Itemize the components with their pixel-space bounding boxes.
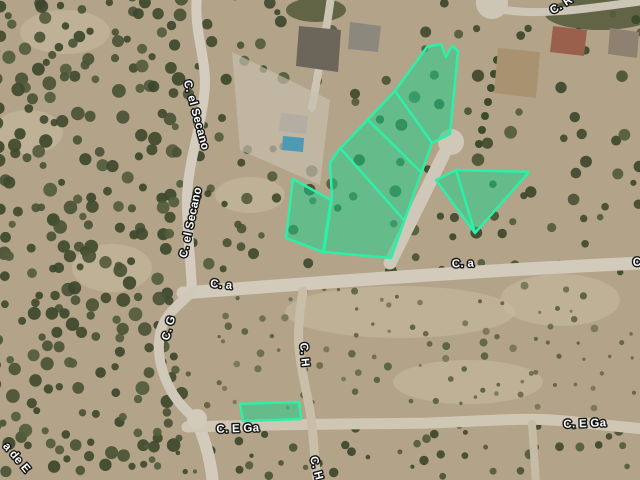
tree [84,451,94,461]
tree [553,383,557,387]
tree [571,168,582,179]
tree [77,263,84,270]
tree [172,123,179,130]
tree [53,220,67,234]
tree [7,20,16,29]
tree [42,76,56,90]
tree [167,21,176,30]
tree [44,92,55,103]
tree [235,437,244,446]
tree [64,250,76,262]
hedge-tree [478,126,486,134]
tree [254,365,261,372]
tree [236,466,244,474]
building-gray-roof [296,26,341,72]
tree [6,389,20,403]
tree [27,244,36,253]
tree [139,184,147,192]
tree [516,31,525,40]
tree [413,440,421,448]
tree [72,382,84,394]
tree [461,366,467,372]
tree [517,467,525,475]
street-label-c-a: C. a [452,258,475,271]
tree [99,459,111,471]
tree [24,104,33,113]
tree [341,441,349,449]
tree [410,324,416,330]
tree [172,147,182,157]
tree [202,19,213,30]
tree [91,332,100,341]
sandy-clearing [500,274,620,326]
tree [472,153,485,166]
tree [591,325,599,333]
tree [427,341,433,347]
tree [249,454,253,458]
tree [38,204,46,212]
sandy-clearing [20,10,110,54]
tree [303,258,313,268]
tree [206,36,217,47]
tree [462,452,469,459]
tree [221,74,232,85]
tree [56,115,68,127]
tree [454,30,463,39]
tree [577,342,580,345]
tree [124,36,131,43]
tree [548,324,554,330]
tree [265,471,274,480]
tree [555,442,564,451]
tree [525,186,536,197]
tree [62,430,71,439]
tree [148,132,162,146]
tree [95,367,106,378]
tree [619,340,624,345]
tree [149,53,156,60]
tree [176,451,181,456]
tree [176,435,183,442]
tree [9,221,16,228]
tree [384,363,392,371]
tree [70,439,82,451]
tree [39,12,51,24]
tree [409,399,414,404]
tree [351,98,359,106]
tree [43,183,57,197]
tree [616,70,628,82]
tree [27,398,37,408]
tree [28,307,41,320]
tree [112,316,120,324]
tree [116,111,129,124]
tree [186,371,191,376]
tree [419,456,428,465]
tree [55,43,64,52]
tree [323,346,329,352]
tree [92,410,100,418]
tree [629,332,633,336]
building-light-roof [348,22,381,52]
tree [571,316,577,322]
tree [316,362,323,369]
tree [218,114,226,122]
tree [1,300,9,308]
tree [79,153,91,165]
map-canvas: C. el SecanoC. el SecanoC. aC. aCC. GC. … [0,0,640,480]
tree [136,381,150,395]
tree [581,240,589,248]
tree [9,363,21,375]
tree [372,355,377,360]
tree [68,359,77,368]
tree [509,218,516,225]
tree [237,224,247,234]
tree [371,322,374,325]
tree [303,465,308,470]
tree [68,39,77,48]
tree [111,54,119,62]
tree [631,15,640,24]
tree [337,288,340,291]
tree [57,2,64,9]
tree [555,82,566,93]
tree [442,355,449,362]
tree [164,212,175,223]
tree [14,128,25,139]
tree [54,263,65,274]
tree [138,322,152,336]
tree [582,358,585,361]
tree [222,313,229,320]
tree [275,16,287,28]
tree [237,42,244,49]
tree [115,223,125,233]
tree [218,335,221,338]
tree [116,293,130,307]
tree [577,129,587,139]
tree [374,377,380,383]
tree [382,76,391,85]
tree [46,439,56,449]
tree [478,299,482,303]
tree [38,333,45,340]
tree [119,413,127,421]
tree [570,112,580,122]
tree [237,242,246,251]
tree [24,442,32,450]
tree [630,180,636,186]
tree [19,43,31,55]
tree [575,443,584,452]
tree [462,320,468,326]
street-label-c-e-ga: C. E Ga [216,422,260,436]
tree [154,462,161,469]
tree [463,430,468,435]
tree [480,388,485,393]
tree [612,168,623,179]
tree [33,407,40,414]
tree [157,201,170,214]
tree [632,391,636,395]
tree [29,374,42,387]
tree [39,134,52,147]
tree [105,446,118,459]
tree [11,83,24,96]
tree [261,431,268,438]
tree [144,367,155,378]
tree [48,51,56,59]
tree [86,28,93,35]
tree [136,228,148,240]
tree [40,115,49,124]
tree [112,35,124,47]
tree [85,111,96,122]
tree [27,93,38,104]
tree [521,282,529,290]
tree [568,194,580,206]
tree [46,307,59,320]
tree [5,12,12,19]
tree [27,268,37,278]
tree [459,402,462,405]
tree [59,308,69,318]
tree [137,44,147,54]
tree [595,441,603,449]
tree [112,84,126,98]
tree [106,160,118,172]
tree [496,383,500,387]
tree [153,292,167,306]
tree [69,71,80,82]
tree [600,371,604,375]
tree [127,257,135,265]
tree [86,200,99,213]
hedge-tree [484,98,492,106]
tree [267,171,277,181]
building-right-edge [608,28,639,58]
tree [128,463,135,470]
tree [134,293,142,301]
tree [355,307,358,310]
tree [423,331,429,337]
tree [580,156,592,168]
tree [437,450,445,458]
tree [473,25,480,32]
tree [397,449,402,454]
tree [480,339,488,347]
tree [164,419,173,428]
tree [237,159,245,167]
tree [388,330,391,333]
tree [11,412,21,422]
tree [0,466,11,477]
tree [144,343,153,352]
tree [233,400,237,404]
tree [483,445,488,450]
tree [574,383,578,387]
tree [214,132,223,141]
building-small [279,113,308,134]
tree [610,11,616,17]
tree [135,84,144,93]
tree [420,27,431,38]
tree [248,248,259,259]
tree [464,107,472,115]
tree [111,363,118,370]
tree [472,70,484,82]
tree [347,447,356,456]
tree [144,444,149,449]
tree [449,233,456,240]
tree [442,342,450,350]
tree [278,460,284,466]
tree [619,442,626,449]
tree [149,456,156,463]
tree [255,38,266,49]
tree [48,460,60,472]
tree [524,25,531,32]
tree [504,126,517,139]
tree [78,5,87,14]
tree [35,292,43,300]
tree [236,296,240,300]
tree [520,380,524,384]
tree [395,295,399,299]
building-tan-roof [494,48,540,98]
tree [123,276,136,289]
building-red-roof [550,26,587,56]
satellite-map: C. el SecanoC. el SecanoC. aC. aCC. GC. … [0,0,640,480]
tree [259,315,266,322]
tree [534,337,538,341]
tree [580,215,587,222]
tree [113,263,127,277]
tree [42,427,49,434]
tree [619,129,631,141]
tree [608,355,612,359]
street-label-c: C [633,257,640,269]
tree [348,350,356,358]
tree [601,203,609,211]
tree [134,428,143,437]
tree [183,469,188,474]
tree [482,138,493,149]
tree [43,59,50,66]
tree [51,327,62,338]
tree [258,232,265,239]
tree [515,108,522,115]
tree [241,328,248,335]
tree [500,301,504,305]
tree [54,341,65,352]
tree [135,152,143,160]
tree [546,340,550,344]
tree [153,428,162,437]
tree [350,89,360,99]
tree [23,153,32,162]
tree [570,310,573,313]
road-junction-pad [187,409,207,429]
tree [55,445,64,454]
tree [274,9,280,15]
tree [412,253,420,261]
tree [439,473,446,480]
hedge-tree [487,84,495,92]
tree [3,176,15,188]
tree [498,229,507,238]
tree [13,207,23,217]
tree [79,409,86,416]
tree [272,193,281,202]
tree [410,465,414,469]
tree [60,72,69,81]
tree [494,391,499,396]
tree [56,383,63,390]
tree [92,75,100,83]
tree [134,395,142,403]
tree [355,369,362,376]
tree [86,298,99,311]
tree [624,464,630,470]
tree [538,311,541,314]
tree [101,293,112,304]
tree [481,352,489,360]
tree [113,201,124,212]
tree [221,201,227,207]
tree [129,307,143,321]
tree [386,302,391,307]
tree [84,220,93,229]
tree [82,249,96,263]
tree [82,53,94,65]
tree [41,357,54,370]
tree [597,214,604,221]
street-label-c-a: C. a [210,278,234,292]
tree [73,135,82,144]
tree [351,288,358,295]
tree [289,297,293,301]
tree [35,0,48,13]
tree [535,404,541,410]
tree [135,129,147,141]
tree [2,51,15,64]
tree [281,314,288,321]
tree [220,265,227,272]
tree [366,455,371,460]
tree [46,231,56,241]
tree [422,434,431,443]
tree [257,349,265,357]
tree [87,439,94,446]
tree [529,371,534,376]
tree [10,148,20,158]
tree [591,405,598,412]
tree [99,256,111,268]
tree [50,291,60,301]
tree [448,376,454,382]
tree [151,273,163,285]
tree [19,424,32,437]
tree [71,107,85,121]
tree [117,323,129,335]
tree [148,441,160,453]
tree [533,370,538,375]
tree [18,317,26,325]
tree [157,27,167,37]
hedge-tree [475,140,483,148]
